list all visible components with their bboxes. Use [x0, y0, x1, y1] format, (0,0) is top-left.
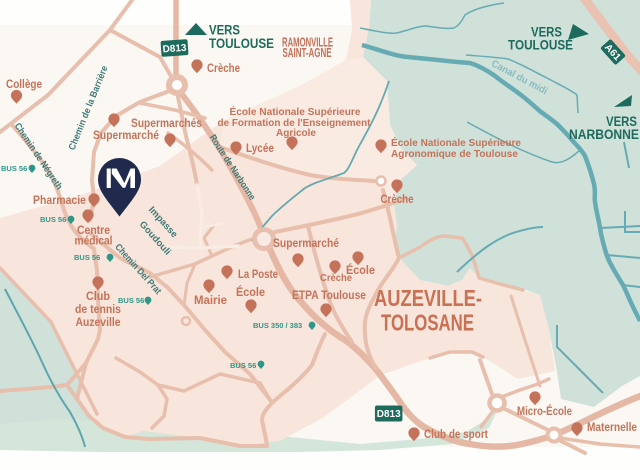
svg-text:Crèche: Crèche	[207, 63, 240, 75]
svg-text:Micro-École: Micro-École	[517, 405, 572, 418]
svg-text:Collège: Collège	[6, 79, 42, 91]
svg-text:École Nationale Supérieure: École Nationale Supérieure	[230, 105, 361, 118]
svg-text:TOULOUSE: TOULOUSE	[508, 38, 573, 53]
svg-text:BUS 56: BUS 56	[118, 296, 144, 305]
svg-text:BUS 56: BUS 56	[1, 164, 27, 173]
svg-text:Supermarché: Supermarché	[93, 130, 159, 142]
svg-text:NARBONNE: NARBONNE	[569, 127, 639, 142]
svg-text:Agronomique de Toulouse: Agronomique de Toulouse	[391, 148, 518, 160]
svg-text:Supermarchés: Supermarchés	[131, 118, 202, 130]
svg-text:La Poste: La Poste	[238, 269, 278, 281]
svg-text:Mairie: Mairie	[194, 295, 227, 307]
svg-text:SAINT-AGNÉ: SAINT-AGNÉ	[283, 45, 332, 60]
svg-text:D813: D813	[377, 409, 401, 420]
svg-text:Club de sport: Club de sport	[424, 429, 488, 441]
svg-text:École: École	[236, 286, 265, 299]
svg-text:BUS 350 / 383: BUS 350 / 383	[253, 321, 302, 330]
svg-text:TOULOUSE: TOULOUSE	[209, 36, 274, 51]
svg-text:Agricole: Agricole	[276, 128, 316, 139]
svg-text:AUZEVILLE-: AUZEVILLE-	[374, 285, 482, 311]
svg-text:Lycée: Lycée	[246, 143, 274, 155]
svg-text:TOLOSANE: TOLOSANE	[381, 310, 474, 336]
svg-text:D813: D813	[162, 43, 187, 56]
svg-text:BUS 56: BUS 56	[230, 361, 256, 370]
svg-text:BUS 56: BUS 56	[40, 215, 66, 224]
svg-text:Club: Club	[86, 291, 110, 303]
svg-text:médical: médical	[75, 236, 113, 248]
svg-text:Supermarché: Supermarché	[273, 238, 339, 250]
svg-text:ETPA Toulouse: ETPA Toulouse	[292, 290, 366, 302]
svg-text:de tennis: de tennis	[75, 304, 121, 316]
svg-text:Maternelle: Maternelle	[587, 422, 637, 434]
svg-text:Pharmacie: Pharmacie	[33, 195, 86, 207]
svg-text:Crèche: Crèche	[381, 194, 414, 206]
svg-text:BUS 56: BUS 56	[74, 253, 100, 262]
svg-text:École: École	[346, 264, 375, 277]
svg-text:Auzeville: Auzeville	[76, 317, 121, 329]
